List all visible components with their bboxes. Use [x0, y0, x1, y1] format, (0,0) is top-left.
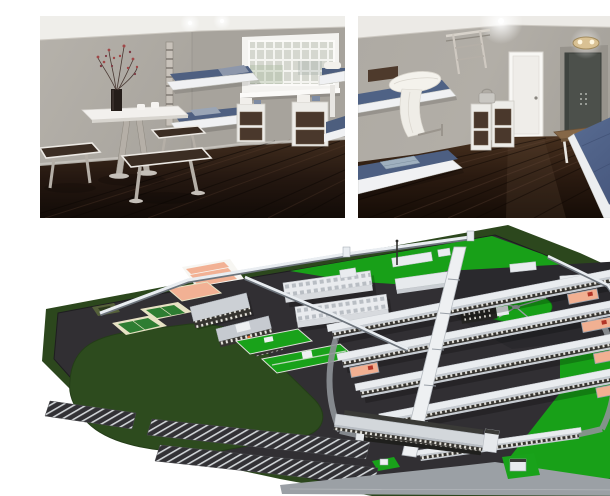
room-right-scene: [358, 16, 610, 218]
site-plan-render: [40, 223, 610, 496]
site-plan-scene: [40, 223, 610, 496]
room-left-scene: [40, 16, 345, 218]
room-render-left: [40, 16, 345, 218]
room-render-right: [358, 16, 610, 218]
wall-lamp: [570, 27, 602, 59]
gatehouse: [502, 453, 540, 479]
